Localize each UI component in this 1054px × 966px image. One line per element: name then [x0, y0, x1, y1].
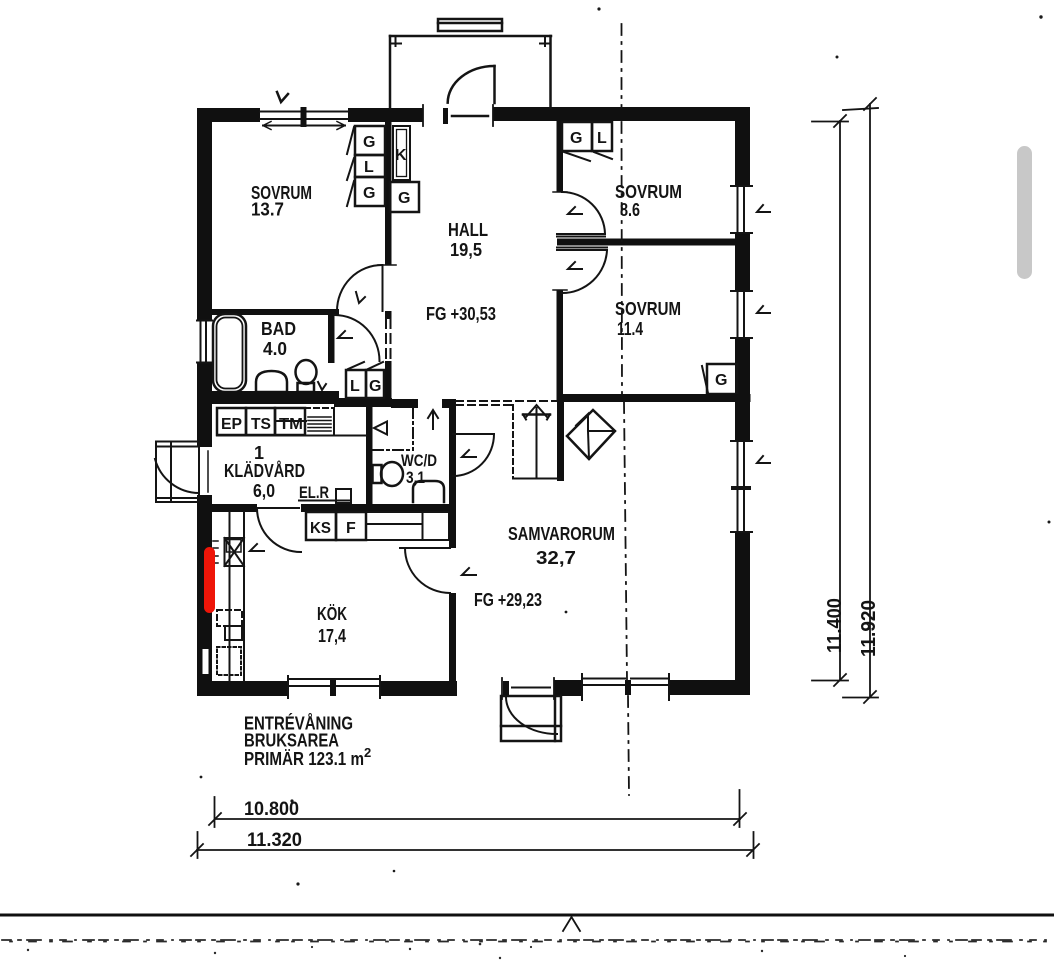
- svg-text:KLÄDVÅRD: KLÄDVÅRD: [224, 461, 305, 481]
- svg-text:G: G: [398, 190, 410, 207]
- svg-text:11.320: 11.320: [247, 830, 302, 851]
- svg-text:KS: KS: [310, 520, 331, 537]
- svg-text:32,7: 32,7: [536, 548, 576, 568]
- svg-text:10.800: 10.800: [244, 799, 299, 820]
- svg-text:G: G: [715, 372, 727, 389]
- svg-text:FG +30,53: FG +30,53: [426, 304, 496, 324]
- svg-text:11.4: 11.4: [617, 319, 643, 339]
- svg-text:G: G: [363, 185, 375, 202]
- svg-text:17,4: 17,4: [318, 626, 346, 646]
- svg-text:PRIMÄR 123.1 m: PRIMÄR 123.1 m: [244, 749, 364, 769]
- svg-text:KÖK: KÖK: [317, 604, 347, 624]
- svg-text:TS: TS: [251, 416, 271, 433]
- svg-text:G: G: [570, 130, 582, 147]
- svg-text:FG +29,23: FG +29,23: [474, 590, 542, 610]
- svg-text:19,5: 19,5: [450, 240, 482, 260]
- svg-text:L: L: [364, 159, 374, 176]
- svg-text:G: G: [363, 134, 375, 151]
- svg-text:13.7: 13.7: [251, 200, 284, 220]
- svg-text:HALL: HALL: [448, 220, 488, 240]
- svg-text:6,0: 6,0: [253, 481, 275, 501]
- svg-text:4.0: 4.0: [263, 339, 287, 359]
- svg-text:11.920: 11.920: [858, 600, 880, 657]
- svg-text:F: F: [346, 520, 356, 537]
- svg-text:TM: TM: [279, 416, 303, 433]
- svg-text:2: 2: [364, 745, 371, 760]
- svg-text:G: G: [369, 378, 381, 395]
- svg-text:SOVRUM: SOVRUM: [615, 182, 682, 202]
- svg-text:BAD: BAD: [261, 319, 296, 339]
- svg-text:11.400: 11.400: [824, 598, 846, 653]
- svg-text:L: L: [597, 130, 607, 147]
- svg-text:8.6: 8.6: [620, 200, 640, 220]
- svg-text:SOVRUM: SOVRUM: [615, 299, 681, 319]
- svg-text:EL.R: EL.R: [299, 483, 329, 502]
- svg-text:1: 1: [254, 443, 264, 463]
- svg-text:L: L: [350, 378, 360, 395]
- svg-text:EP: EP: [221, 416, 242, 433]
- svg-text:BRUKSAREA: BRUKSAREA: [244, 731, 339, 751]
- svg-text:SAMVARORUM: SAMVARORUM: [508, 524, 615, 544]
- svg-text:K: K: [395, 147, 407, 164]
